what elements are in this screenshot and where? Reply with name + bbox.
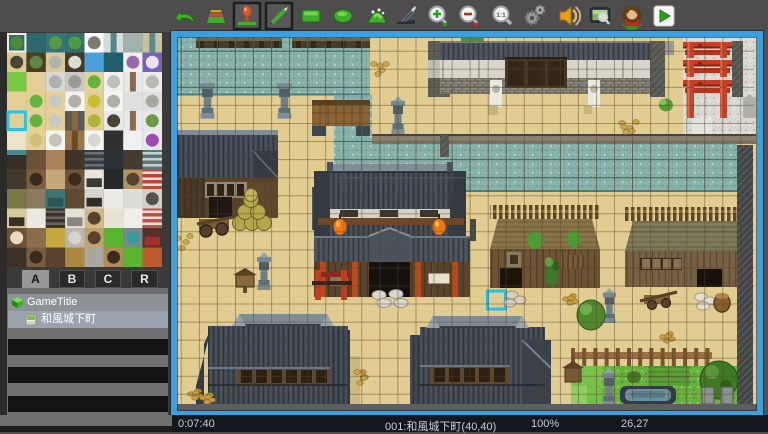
svg-text:1:1: 1:1 — [496, 12, 506, 19]
